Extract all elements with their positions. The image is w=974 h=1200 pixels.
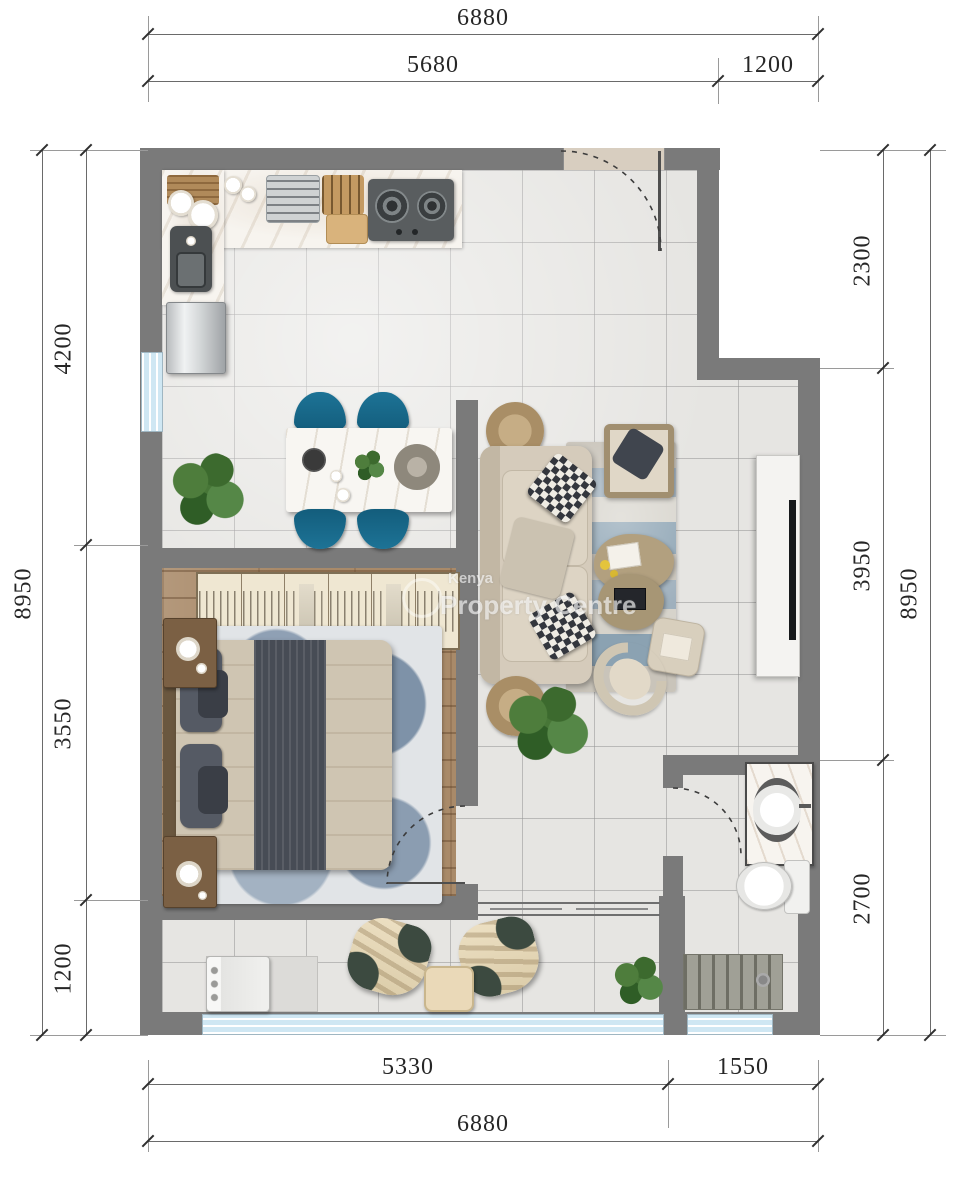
dim-left-seg2: 3550 <box>51 684 78 764</box>
dim-top-seg2: 1200 <box>728 52 808 79</box>
watermark-logo <box>402 578 442 618</box>
dim-right-seg1: 2300 <box>850 221 877 301</box>
dimension-line <box>930 150 931 1035</box>
dim-right-seg3: 2700 <box>850 859 877 939</box>
extension-line <box>30 1035 148 1036</box>
floor-plan-canvas: Kenya Property Centre 6880 5680 1200 533… <box>0 0 974 1200</box>
dim-left-seg1: 4200 <box>51 309 78 389</box>
dimension-line <box>148 34 818 35</box>
entry-door-arc <box>561 151 661 251</box>
dim-right-seg2: 3950 <box>850 526 877 606</box>
dim-bottom-overall: 6880 <box>443 1111 523 1138</box>
extension-line <box>30 150 148 151</box>
dimension-line <box>42 150 43 1035</box>
bedroom-door-arc <box>387 806 465 884</box>
extension-line <box>668 1060 669 1128</box>
dim-top-seg1: 5680 <box>393 52 473 79</box>
dim-top-overall: 6880 <box>443 5 523 32</box>
extension-line <box>148 16 149 102</box>
dim-bottom-seg1: 5330 <box>368 1054 448 1081</box>
dim-bottom-seg2: 1550 <box>703 1054 783 1081</box>
dimension-line <box>883 150 884 1035</box>
dimension-line <box>148 1084 818 1085</box>
dimension-line <box>148 1141 818 1142</box>
watermark-brand-large: Property Centre <box>440 590 637 621</box>
dimension-line <box>86 150 87 1035</box>
dim-left-seg3: 1200 <box>51 929 78 1009</box>
dim-left-overall: 8950 <box>11 554 38 634</box>
watermark-brand-small: Kenya <box>448 570 493 587</box>
bathroom-door-arc <box>673 788 741 856</box>
dim-right-overall: 8950 <box>897 554 924 634</box>
extension-line <box>818 16 819 102</box>
